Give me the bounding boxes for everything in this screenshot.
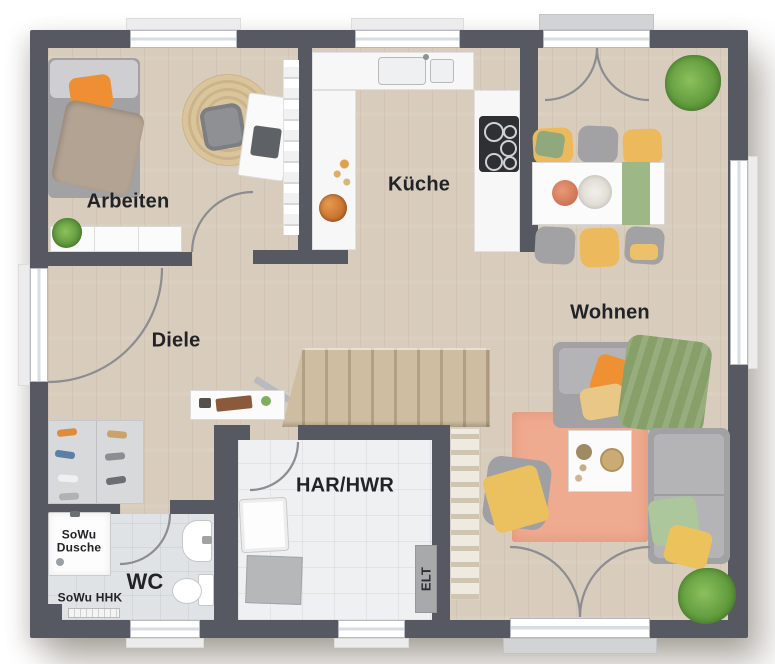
room-label-kueche: Küche <box>388 174 450 197</box>
window-sill <box>334 638 409 648</box>
entry-door-swing <box>48 268 162 382</box>
heater-label: SoWu HHK <box>58 591 123 604</box>
building-outline: ELT Arbeiten Küche Wohnen <box>30 30 748 638</box>
window-sill <box>126 18 241 30</box>
door-swing-arcs <box>30 30 748 638</box>
room-label-utility: HAR/HWR <box>296 475 394 498</box>
terrace-step-bottom <box>503 638 657 654</box>
french-door-bottom-swing <box>510 547 580 617</box>
french-door-top-swing <box>545 48 597 100</box>
room-label-arbeiten: Arbeiten <box>87 191 170 214</box>
entry-sill <box>18 264 30 386</box>
shower-label-line2: Dusche <box>57 542 102 555</box>
window-sill <box>748 156 758 369</box>
room-label-wohnen: Wohnen <box>570 302 650 325</box>
arbeiten-door-swing <box>192 192 253 252</box>
floorplan-canvas: ELT Arbeiten Küche Wohnen <box>0 0 775 664</box>
wc-door-swing <box>120 514 170 564</box>
utility-door-swing <box>250 442 298 490</box>
window-sill <box>126 638 204 648</box>
french-door-top-swing <box>597 48 649 100</box>
room-label-diele: Diele <box>152 330 201 353</box>
shower-label: SoWu Dusche <box>57 529 102 556</box>
room-label-wc: WC <box>126 569 163 595</box>
window-sill <box>351 18 464 30</box>
french-door-bottom-swing <box>580 547 650 617</box>
shower-label-line1: SoWu <box>57 529 102 542</box>
terrace-step-top <box>539 14 654 30</box>
